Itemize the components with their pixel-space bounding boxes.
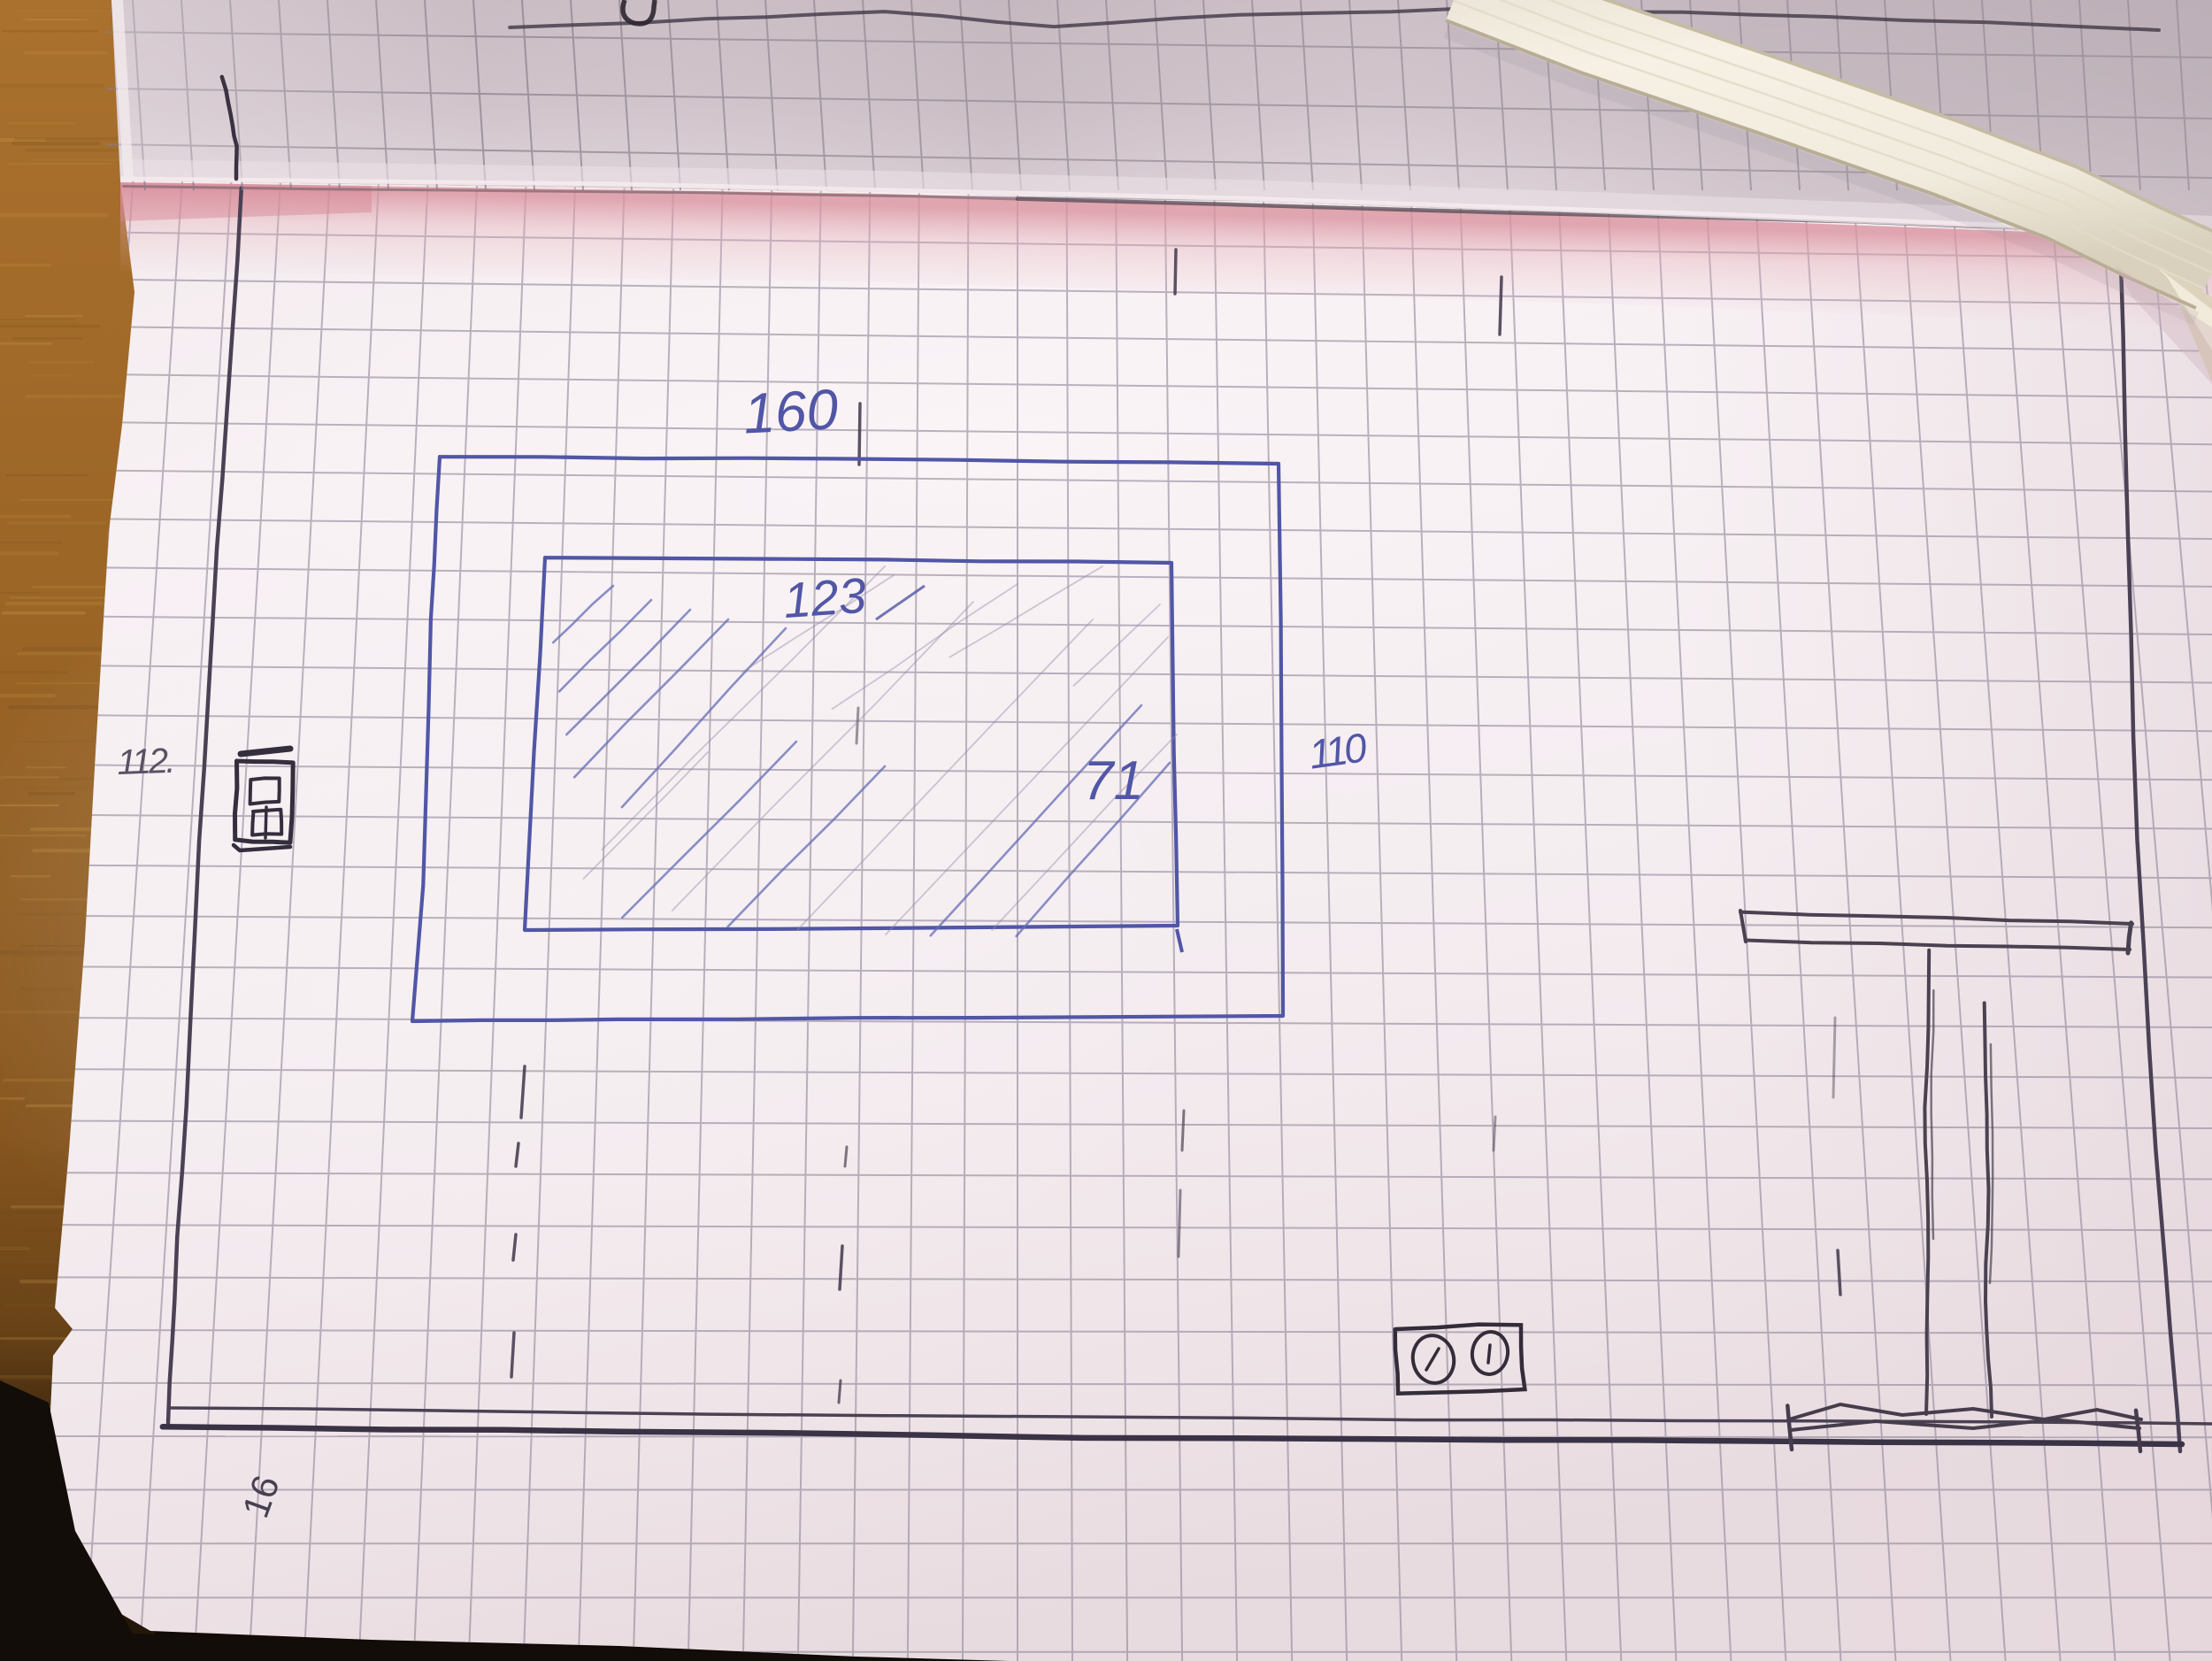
svg-text:71: 71 (1083, 750, 1144, 811)
svg-text:112.: 112. (117, 742, 173, 782)
svg-text:123: 123 (781, 567, 868, 628)
svg-text:110: 110 (1306, 724, 1370, 778)
svg-text:160: 160 (741, 377, 840, 446)
